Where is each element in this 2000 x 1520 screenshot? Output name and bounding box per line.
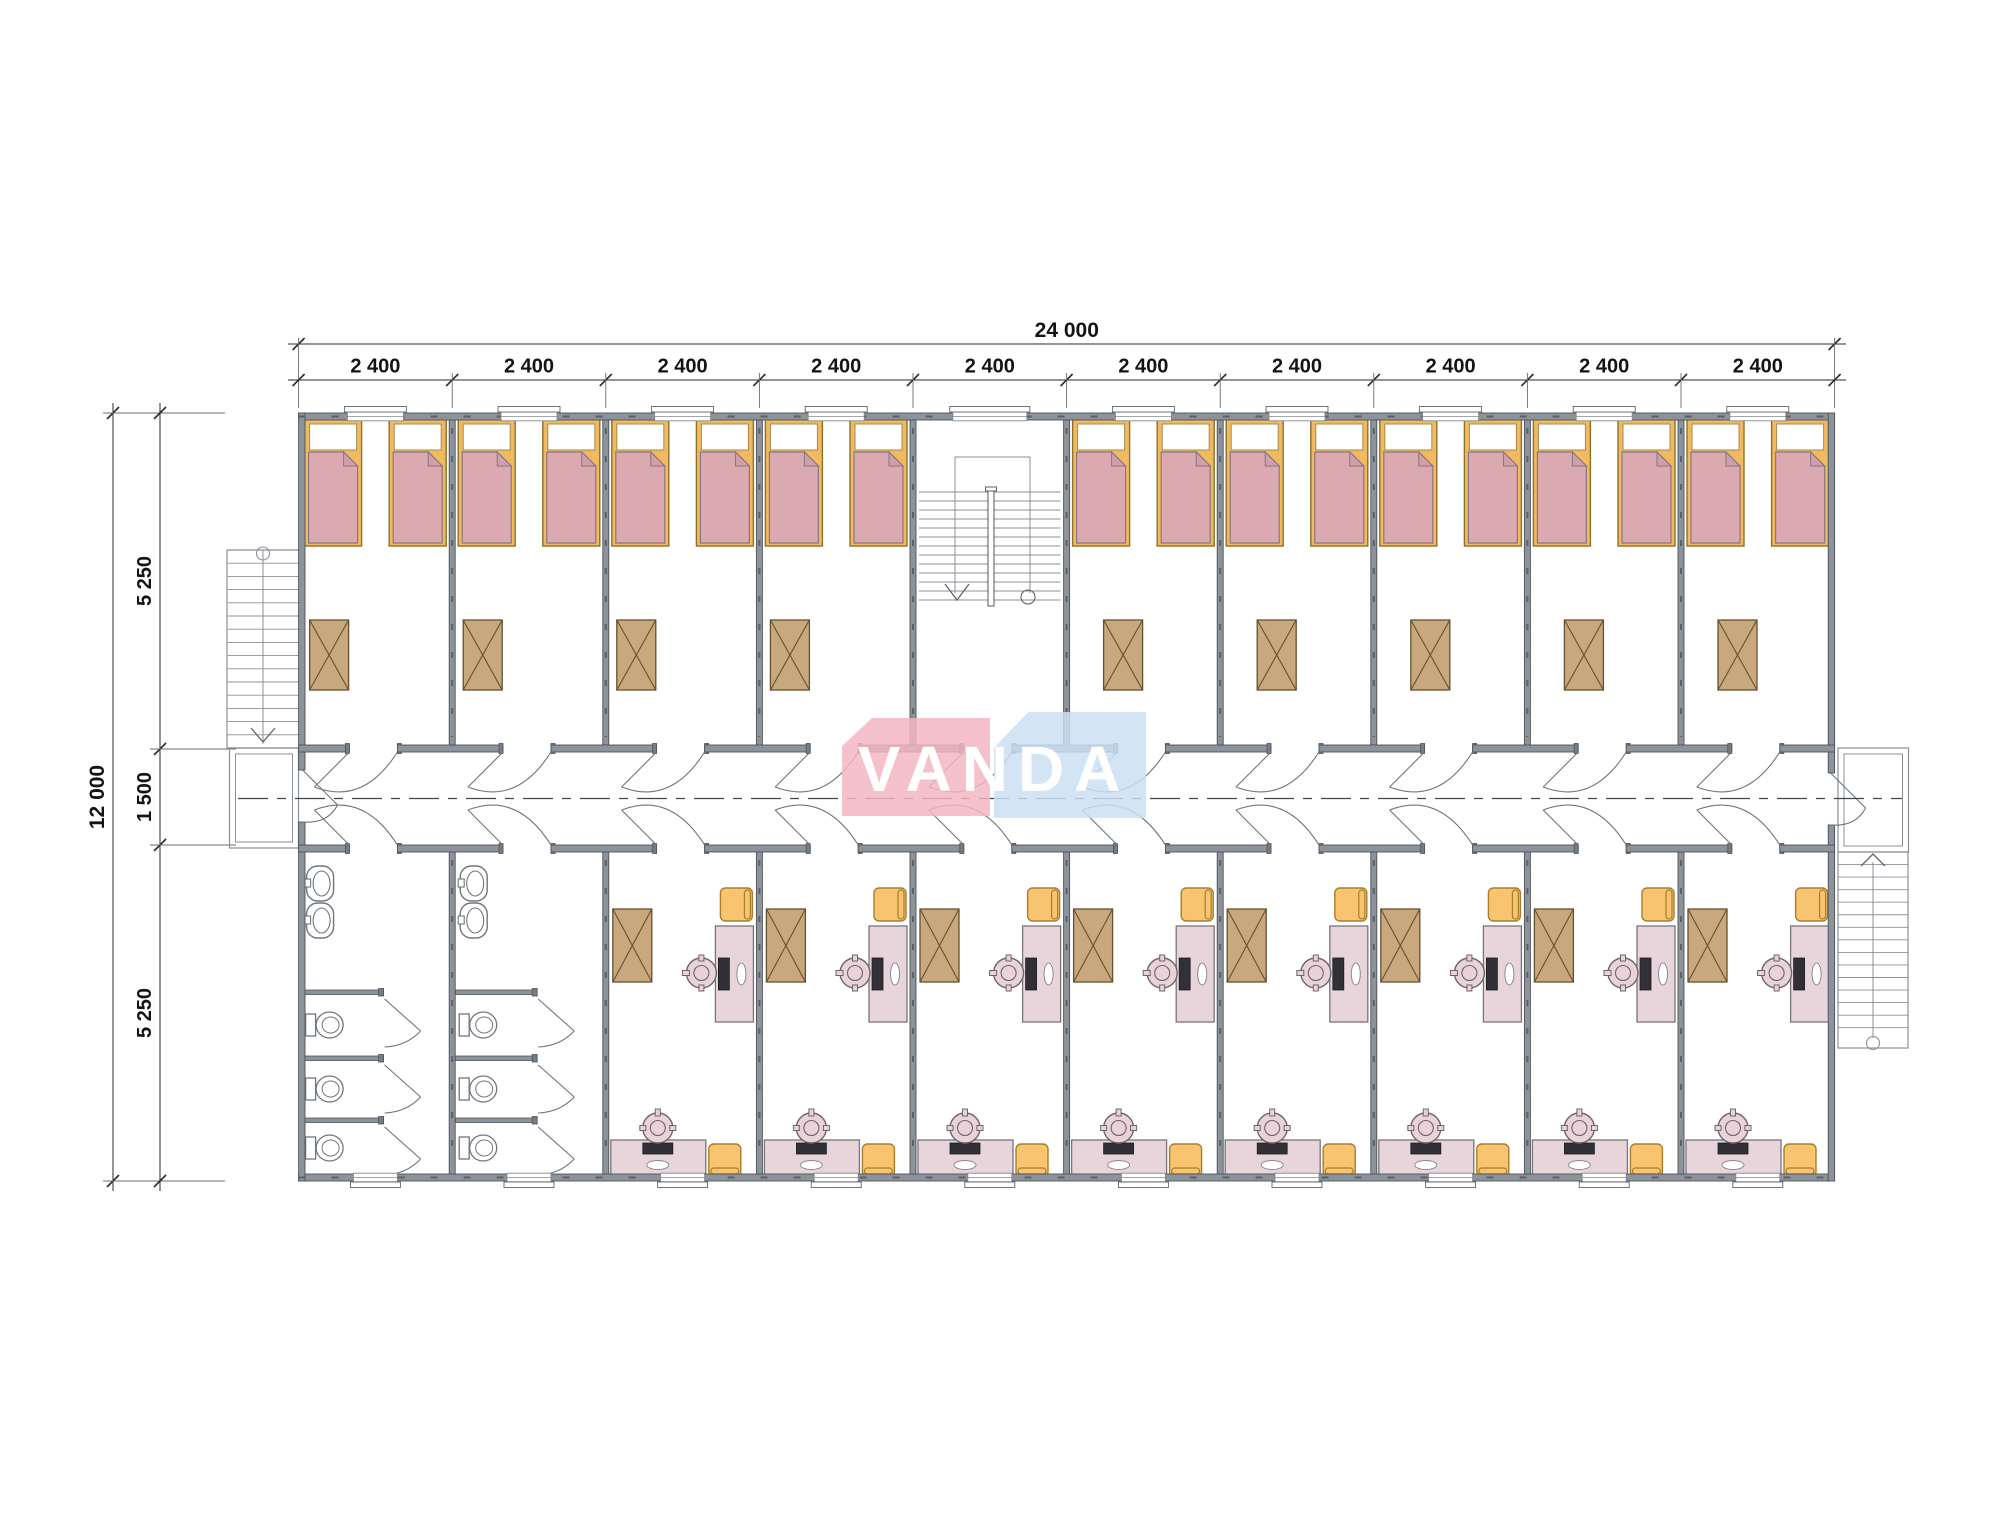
desk-icon — [1072, 1140, 1167, 1178]
bed-icon — [1157, 419, 1214, 546]
toilet-icon — [306, 1076, 344, 1102]
toilet-icon — [306, 1135, 344, 1161]
window — [965, 1173, 1015, 1187]
bed-icon — [389, 419, 446, 546]
bed-icon — [1772, 419, 1829, 546]
bed-icon — [1226, 419, 1283, 546]
window — [504, 1173, 554, 1187]
bed-icon — [612, 419, 669, 546]
desk-icon — [1023, 926, 1061, 1022]
desk-icon — [1379, 1140, 1474, 1178]
window — [1266, 407, 1328, 421]
visitor-chair-icon — [1477, 1144, 1509, 1177]
table-icon — [617, 620, 656, 690]
total-height-dimension-label: 12 000 — [86, 765, 109, 829]
window — [652, 407, 714, 421]
table-icon — [1564, 620, 1603, 690]
bed-icon — [765, 419, 822, 546]
height-segment-label: 1 500 — [134, 772, 156, 822]
bed-icon — [458, 419, 515, 546]
bed-icon — [305, 419, 362, 546]
table-icon — [1411, 620, 1450, 690]
desk-icon — [1686, 1140, 1781, 1178]
bed-icon — [543, 419, 600, 546]
window — [1118, 1173, 1168, 1187]
visitor-chair-icon — [1181, 888, 1213, 921]
bed-icon — [850, 419, 907, 546]
bed-icon — [1618, 419, 1675, 546]
height-segment-label: 5 250 — [134, 988, 156, 1038]
floor-plan-canvas: 24 0002 4002 4002 4002 4002 4002 4002 40… — [0, 0, 2000, 1520]
bay-dimension-label: 2 400 — [1272, 356, 1322, 378]
desk-icon — [764, 1140, 859, 1178]
window — [1272, 1173, 1322, 1187]
bay-dimension-label: 2 400 — [965, 356, 1015, 378]
desk-icon — [1176, 926, 1214, 1022]
bay-dimension-label: 2 400 — [1118, 356, 1168, 378]
visitor-chair-icon — [1796, 888, 1828, 921]
table-icon — [920, 909, 959, 982]
sink-icon — [458, 866, 487, 901]
bay-dimension-label: 2 400 — [1579, 356, 1629, 378]
window — [1420, 407, 1482, 421]
visitor-chair-icon — [709, 1144, 741, 1177]
window — [498, 407, 560, 421]
window — [344, 407, 406, 421]
visitor-chair-icon — [1323, 1144, 1355, 1177]
window — [1733, 1173, 1783, 1187]
desk-icon — [1532, 1140, 1627, 1178]
total-width-dimension-label: 24 000 — [1035, 319, 1099, 342]
visitor-chair-icon — [720, 888, 752, 921]
window — [950, 407, 1030, 421]
bay-dimension-label: 2 400 — [504, 356, 554, 378]
bed-icon — [1311, 419, 1368, 546]
toilet-icon — [306, 1012, 344, 1038]
desk-icon — [1330, 926, 1368, 1022]
bed-icon — [1380, 419, 1437, 546]
toilet-icon — [459, 1135, 497, 1161]
table-icon — [1718, 620, 1757, 690]
table-icon — [1534, 909, 1573, 982]
toilet-icon — [459, 1012, 497, 1038]
visitor-chair-icon — [874, 888, 906, 921]
window — [350, 1173, 400, 1187]
table-icon — [1104, 620, 1143, 690]
visitor-chair-icon — [1784, 1144, 1816, 1177]
visitor-chair-icon — [1028, 888, 1060, 921]
desk-icon — [715, 926, 753, 1022]
table-icon — [463, 620, 502, 690]
window — [811, 1173, 861, 1187]
desk-icon — [1225, 1140, 1320, 1178]
visitor-chair-icon — [1016, 1144, 1048, 1177]
height-segment-label: 5 250 — [134, 556, 156, 606]
desk-icon — [918, 1140, 1013, 1178]
visitor-chair-icon — [1170, 1144, 1202, 1177]
bed-icon — [1464, 419, 1521, 546]
floor-plan: 24 0002 4002 4002 4002 4002 4002 4002 40… — [0, 0, 2000, 1520]
bay-dimension-label: 2 400 — [658, 356, 708, 378]
bed-icon — [1073, 419, 1130, 546]
sink-icon — [458, 903, 487, 938]
window — [805, 407, 867, 421]
desk-icon — [1637, 926, 1675, 1022]
table-icon — [766, 909, 805, 982]
bed-icon — [1687, 419, 1744, 546]
bed-icon — [1533, 419, 1590, 546]
visitor-chair-icon — [1335, 888, 1367, 921]
desk-icon — [611, 1140, 706, 1178]
table-icon — [1257, 620, 1296, 690]
window — [1112, 407, 1174, 421]
visitor-chair-icon — [1488, 888, 1520, 921]
toilet-icon — [459, 1076, 497, 1102]
table-icon — [613, 909, 652, 982]
desk-icon — [1791, 926, 1829, 1022]
window — [1579, 1173, 1629, 1187]
bed-icon — [696, 419, 753, 546]
visitor-chair-icon — [1630, 1144, 1662, 1177]
desk-icon — [1483, 926, 1521, 1022]
bay-dimension-label: 2 400 — [1733, 356, 1783, 378]
table-icon — [770, 620, 809, 690]
table-icon — [1688, 909, 1727, 982]
bay-dimension-label: 2 400 — [811, 356, 861, 378]
logo-text: VANDA — [858, 733, 1131, 805]
sink-icon — [305, 866, 334, 901]
bay-dimension-label: 2 400 — [1426, 356, 1476, 378]
table-icon — [1074, 909, 1113, 982]
bay-dimension-label: 2 400 — [350, 356, 400, 378]
visitor-chair-icon — [862, 1144, 894, 1177]
visitor-chair-icon — [1642, 888, 1674, 921]
table-icon — [1381, 909, 1420, 982]
window — [658, 1173, 708, 1187]
table-icon — [1227, 909, 1266, 982]
table-icon — [310, 620, 349, 690]
desk-icon — [869, 926, 907, 1022]
window — [1727, 407, 1789, 421]
window — [1573, 407, 1635, 421]
window — [1426, 1173, 1476, 1187]
sink-icon — [305, 903, 334, 938]
